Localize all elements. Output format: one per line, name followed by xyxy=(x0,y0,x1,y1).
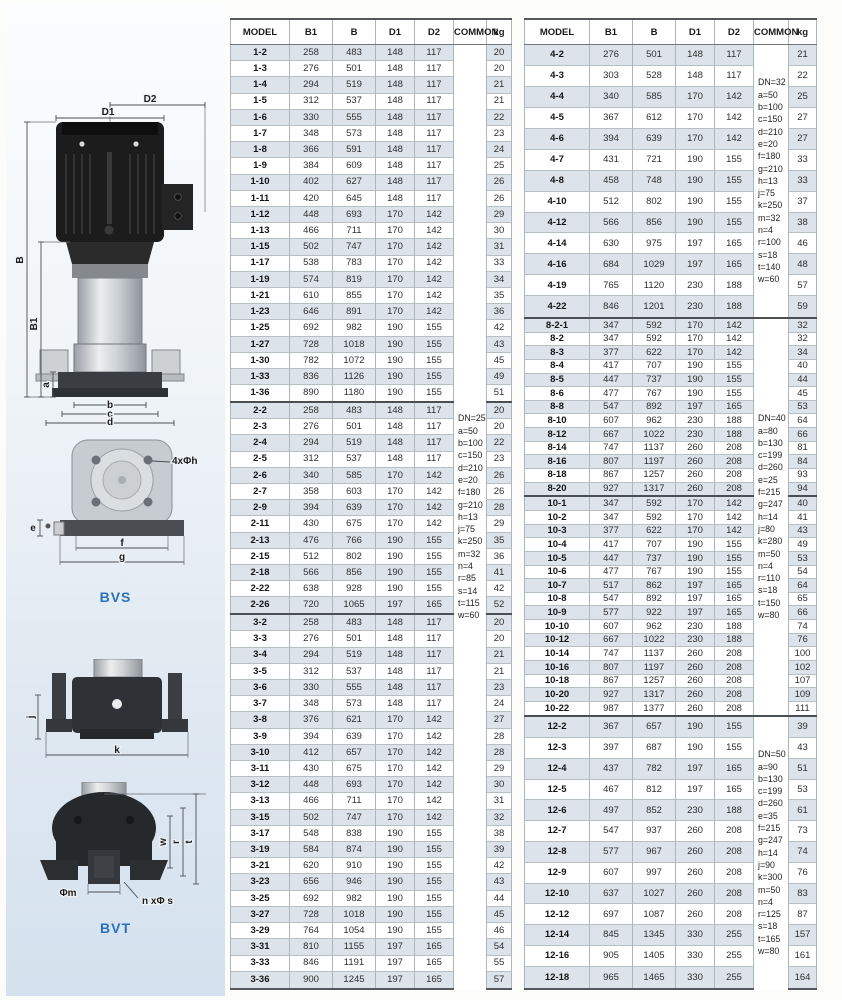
value-cell: 260 xyxy=(676,660,715,674)
value-cell: 591 xyxy=(333,142,376,158)
weight-cell: 46 xyxy=(789,233,817,254)
column-header-common: COMMON xyxy=(454,19,487,45)
value-cell: 230 xyxy=(676,633,715,647)
weight-cell: 53 xyxy=(789,400,817,414)
model-cell: 3-9 xyxy=(231,728,290,744)
value-cell: 330 xyxy=(676,946,715,967)
model-cell: 10-14 xyxy=(525,647,590,661)
model-cell: 3-7 xyxy=(231,696,290,712)
value-cell: 394 xyxy=(290,500,333,516)
weight-cell: 34 xyxy=(789,346,817,360)
weight-cell: 29 xyxy=(487,761,512,777)
diagram-panel: D2 D1 xyxy=(6,4,225,996)
value-cell: 197 xyxy=(676,254,715,275)
common-dimension-line: t=150 xyxy=(758,597,788,609)
model-cell: 3-25 xyxy=(231,890,290,906)
model-cell: 8-5 xyxy=(525,373,590,387)
value-cell: 657 xyxy=(333,744,376,760)
value-cell: 260 xyxy=(676,688,715,702)
weight-cell: 22 xyxy=(487,109,512,125)
value-cell: 737 xyxy=(633,551,676,565)
model-cell: 10-4 xyxy=(525,538,590,552)
weight-cell: 26 xyxy=(487,174,512,190)
value-cell: 997 xyxy=(633,862,676,883)
value-cell: 547 xyxy=(590,821,633,842)
value-cell: 538 xyxy=(290,255,333,271)
value-cell: 639 xyxy=(333,728,376,744)
weight-cell: 20 xyxy=(487,61,512,77)
value-cell: 230 xyxy=(676,275,715,296)
weight-cell: 74 xyxy=(789,842,817,863)
value-cell: 190 xyxy=(676,538,715,552)
value-cell: 170 xyxy=(376,467,415,483)
value-cell: 142 xyxy=(715,332,754,346)
value-cell: 260 xyxy=(676,904,715,925)
value-cell: 1137 xyxy=(633,647,676,661)
column-header-b1: B1 xyxy=(590,19,633,45)
value-cell: 148 xyxy=(376,77,415,93)
model-cell: 2-22 xyxy=(231,581,290,597)
value-cell: 566 xyxy=(290,565,333,581)
value-cell: 962 xyxy=(633,620,676,634)
value-cell: 155 xyxy=(415,369,454,385)
value-cell: 155 xyxy=(715,373,754,387)
value-cell: 155 xyxy=(415,385,454,402)
value-cell: 501 xyxy=(333,631,376,647)
common-dimension-line: e=25 xyxy=(758,474,788,486)
value-cell: 610 xyxy=(290,288,333,304)
common-dimensions-cell: DN=50a=90b=130c=199d=260e=35f=215g=247h=… xyxy=(754,716,789,989)
value-cell: 190 xyxy=(376,874,415,890)
value-cell: 142 xyxy=(415,207,454,223)
value-cell: 1126 xyxy=(333,369,376,385)
value-cell: 394 xyxy=(590,128,633,149)
common-dimension-line: w=80 xyxy=(758,945,788,957)
value-cell: 687 xyxy=(633,737,676,758)
value-cell: 519 xyxy=(333,77,376,93)
value-cell: 747 xyxy=(590,647,633,661)
weight-cell: 20 xyxy=(487,631,512,647)
weight-cell: 25 xyxy=(789,86,817,107)
value-cell: 358 xyxy=(290,484,333,500)
weight-cell: 40 xyxy=(789,359,817,373)
value-cell: 612 xyxy=(633,107,676,128)
value-cell: 190 xyxy=(676,170,715,191)
value-cell: 117 xyxy=(415,77,454,93)
common-dimension-line: m=32 xyxy=(758,212,788,224)
value-cell: 627 xyxy=(333,174,376,190)
value-cell: 197 xyxy=(676,779,715,800)
model-cell: 1-21 xyxy=(231,288,290,304)
value-cell: 117 xyxy=(415,696,454,712)
model-cell: 1-12 xyxy=(231,207,290,223)
value-cell: 748 xyxy=(633,170,676,191)
value-cell: 188 xyxy=(715,428,754,442)
dim-label-j: j xyxy=(26,715,37,719)
value-cell: 294 xyxy=(290,435,333,451)
value-cell: 900 xyxy=(290,971,333,989)
pump-base xyxy=(58,372,162,390)
value-cell: 367 xyxy=(590,107,633,128)
value-cell: 965 xyxy=(590,966,633,989)
value-cell: 208 xyxy=(715,647,754,661)
value-cell: 142 xyxy=(415,255,454,271)
model-cell: 8-10 xyxy=(525,414,590,428)
weight-cell: 73 xyxy=(789,821,817,842)
weight-cell: 21 xyxy=(487,647,512,663)
weight-cell: 21 xyxy=(487,77,512,93)
model-cell: 3-27 xyxy=(231,906,290,922)
value-cell: 165 xyxy=(415,939,454,955)
value-cell: 208 xyxy=(715,821,754,842)
model-cell: 10-16 xyxy=(525,660,590,674)
value-cell: 512 xyxy=(590,191,633,212)
value-cell: 148 xyxy=(376,631,415,647)
model-cell: 2-13 xyxy=(231,532,290,548)
value-cell: 190 xyxy=(676,359,715,373)
table-row: 4-2276501148117DN=32a=50b=100c=150d=210e… xyxy=(525,45,817,66)
model-cell: 3-5 xyxy=(231,663,290,679)
value-cell: 1029 xyxy=(633,254,676,275)
bvt-caption: BVT xyxy=(6,920,225,936)
value-cell: 1022 xyxy=(633,633,676,647)
value-cell: 148 xyxy=(376,109,415,125)
weight-cell: 30 xyxy=(487,223,512,239)
column-header-b: B xyxy=(633,19,676,45)
value-cell: 747 xyxy=(333,239,376,255)
value-cell: 165 xyxy=(715,400,754,414)
value-cell: 737 xyxy=(633,373,676,387)
table-row: 8-2-1347592170142DN=40a=80b=130c=199d=26… xyxy=(525,318,817,332)
common-dimension-line: t=165 xyxy=(758,933,788,945)
value-cell: 1120 xyxy=(633,275,676,296)
value-cell: 148 xyxy=(376,419,415,435)
value-cell: 312 xyxy=(290,93,333,109)
value-cell: 765 xyxy=(590,275,633,296)
value-cell: 693 xyxy=(333,207,376,223)
model-cell: 1-9 xyxy=(231,158,290,174)
value-cell: 197 xyxy=(376,939,415,955)
value-cell: 982 xyxy=(333,320,376,336)
model-cell: 10-3 xyxy=(525,524,590,538)
value-cell: 165 xyxy=(715,592,754,606)
value-cell: 692 xyxy=(290,320,333,336)
common-dimension-line: f=180 xyxy=(458,486,486,498)
value-cell: 1191 xyxy=(333,955,376,971)
value-cell: 148 xyxy=(376,680,415,696)
common-dimension-line: k=300 xyxy=(758,871,788,883)
value-cell: 117 xyxy=(415,61,454,77)
value-cell: 910 xyxy=(333,858,376,874)
value-cell: 142 xyxy=(415,712,454,728)
dim-label-g: g xyxy=(119,552,125,563)
common-dimension-line: h=13 xyxy=(758,175,788,187)
common-dimension-line: n=4 xyxy=(758,224,788,236)
value-cell: 148 xyxy=(376,190,415,206)
value-cell: 170 xyxy=(676,346,715,360)
common-dimension-line: m=50 xyxy=(758,548,788,560)
value-cell: 1317 xyxy=(633,688,676,702)
pump-side-view-drawing: D2 D1 xyxy=(12,92,218,426)
weight-cell: 26 xyxy=(487,484,512,500)
weight-cell: 43 xyxy=(789,737,817,758)
dim-label-d: d xyxy=(107,417,113,426)
weight-cell: 45 xyxy=(487,352,512,368)
value-cell: 330 xyxy=(676,966,715,989)
value-cell: 905 xyxy=(590,946,633,967)
weight-cell: 164 xyxy=(789,966,817,989)
value-cell: 1018 xyxy=(333,336,376,352)
weight-cell: 20 xyxy=(487,419,512,435)
value-cell: 142 xyxy=(415,288,454,304)
value-cell: 646 xyxy=(290,304,333,320)
model-cell: 4-5 xyxy=(525,107,590,128)
value-cell: 208 xyxy=(715,674,754,688)
column-header-common: COMMON xyxy=(754,19,789,45)
value-cell: 807 xyxy=(590,660,633,674)
weight-cell: 64 xyxy=(789,414,817,428)
common-dimension-line: w=60 xyxy=(758,273,788,285)
weight-cell: 27 xyxy=(789,128,817,149)
weight-cell: 44 xyxy=(789,373,817,387)
common-dimension-line: r=85 xyxy=(458,572,486,584)
value-cell: 155 xyxy=(415,581,454,597)
value-cell: 448 xyxy=(290,207,333,223)
value-cell: 142 xyxy=(715,107,754,128)
common-dimension-line: f=180 xyxy=(758,150,788,162)
weight-cell: 41 xyxy=(487,565,512,581)
model-cell: 4-12 xyxy=(525,212,590,233)
value-cell: 255 xyxy=(715,925,754,946)
value-cell: 856 xyxy=(333,565,376,581)
model-cell: 8-3 xyxy=(525,346,590,360)
value-cell: 190 xyxy=(676,373,715,387)
value-cell: 260 xyxy=(676,842,715,863)
model-cell: 3-29 xyxy=(231,923,290,939)
weight-cell: 109 xyxy=(789,688,817,702)
value-cell: 1345 xyxy=(633,925,676,946)
common-dimension-line: h=14 xyxy=(758,511,788,523)
model-cell: 8-12 xyxy=(525,428,590,442)
value-cell: 170 xyxy=(376,777,415,793)
model-cell: 3-2 xyxy=(231,614,290,631)
value-cell: 477 xyxy=(590,387,633,401)
value-cell: 117 xyxy=(715,65,754,86)
value-cell: 155 xyxy=(715,538,754,552)
weight-cell: 31 xyxy=(487,239,512,255)
value-cell: 502 xyxy=(290,239,333,255)
model-cell: 4-7 xyxy=(525,149,590,170)
value-cell: 170 xyxy=(676,128,715,149)
model-cell: 12-18 xyxy=(525,966,590,989)
model-cell: 1-4 xyxy=(231,77,290,93)
value-cell: 148 xyxy=(376,435,415,451)
value-cell: 592 xyxy=(633,496,676,510)
value-cell: 142 xyxy=(715,496,754,510)
common-dimension-line: m=50 xyxy=(758,884,788,896)
value-cell: 148 xyxy=(376,663,415,679)
value-cell: 1201 xyxy=(633,296,676,318)
model-cell: 10-7 xyxy=(525,579,590,593)
common-dimension-line: d=260 xyxy=(758,461,788,473)
value-cell: 675 xyxy=(333,516,376,532)
weight-cell: 107 xyxy=(789,674,817,688)
column-header-model: MODEL xyxy=(231,19,290,45)
value-cell: 810 xyxy=(290,939,333,955)
weight-cell: 42 xyxy=(487,858,512,874)
weight-cell: 102 xyxy=(789,660,817,674)
column-header-b: B xyxy=(333,19,376,45)
value-cell: 417 xyxy=(590,538,633,552)
common-dimension-line: m=32 xyxy=(458,548,486,560)
value-cell: 188 xyxy=(715,414,754,428)
value-cell: 697 xyxy=(590,904,633,925)
value-cell: 294 xyxy=(290,77,333,93)
value-cell: 767 xyxy=(633,387,676,401)
value-cell: 417 xyxy=(590,359,633,373)
common-dimension-line: j=90 xyxy=(758,859,788,871)
weight-cell: 46 xyxy=(487,923,512,939)
value-cell: 170 xyxy=(376,728,415,744)
model-cell: 3-33 xyxy=(231,955,290,971)
value-cell: 117 xyxy=(415,142,454,158)
value-cell: 208 xyxy=(715,701,754,715)
model-cell: 1-27 xyxy=(231,336,290,352)
weight-cell: 36 xyxy=(487,548,512,564)
value-cell: 142 xyxy=(715,524,754,538)
dim-label-d2: D2 xyxy=(144,94,157,105)
value-cell: 412 xyxy=(290,744,333,760)
model-cell: 1-10 xyxy=(231,174,290,190)
value-cell: 155 xyxy=(715,191,754,212)
value-cell: 197 xyxy=(676,233,715,254)
value-cell: 846 xyxy=(590,296,633,318)
value-cell: 348 xyxy=(290,696,333,712)
model-cell: 2-11 xyxy=(231,516,290,532)
model-cell: 1-17 xyxy=(231,255,290,271)
weight-cell: 36 xyxy=(487,304,512,320)
model-cell: 1-5 xyxy=(231,93,290,109)
value-cell: 197 xyxy=(676,400,715,414)
value-cell: 208 xyxy=(715,455,754,469)
model-cell: 8-2-1 xyxy=(525,318,590,332)
value-cell: 577 xyxy=(590,842,633,863)
value-cell: 892 xyxy=(633,400,676,414)
weight-cell: 111 xyxy=(789,701,817,715)
value-cell: 517 xyxy=(590,579,633,593)
model-cell: 12-6 xyxy=(525,800,590,821)
value-cell: 190 xyxy=(676,737,715,758)
value-cell: 148 xyxy=(376,142,415,158)
common-dimension-line: a=80 xyxy=(758,425,788,437)
common-dimension-line: e=20 xyxy=(458,474,486,486)
model-cell: 2-15 xyxy=(231,548,290,564)
value-cell: 276 xyxy=(590,45,633,66)
weight-cell: 41 xyxy=(789,511,817,525)
value-cell: 190 xyxy=(676,551,715,565)
value-cell: 117 xyxy=(415,402,454,419)
value-cell: 142 xyxy=(415,500,454,516)
value-cell: 384 xyxy=(290,158,333,174)
common-dimension-line: c=199 xyxy=(758,785,788,797)
value-cell: 638 xyxy=(290,581,333,597)
dimensions-table: MODELB1BD1D2COMMONkg4-2276501148117DN=32… xyxy=(524,18,817,990)
value-cell: 766 xyxy=(333,532,376,548)
value-cell: 170 xyxy=(676,107,715,128)
model-cell: 12-3 xyxy=(525,737,590,758)
model-cell: 4-4 xyxy=(525,86,590,107)
value-cell: 684 xyxy=(590,254,633,275)
weight-cell: 161 xyxy=(789,946,817,967)
value-cell: 1257 xyxy=(633,674,676,688)
value-cell: 142 xyxy=(415,744,454,760)
weight-cell: 33 xyxy=(487,255,512,271)
value-cell: 348 xyxy=(290,126,333,142)
value-cell: 767 xyxy=(633,565,676,579)
weight-cell: 23 xyxy=(487,680,512,696)
weight-cell: 40 xyxy=(789,496,817,510)
model-cell: 10-9 xyxy=(525,606,590,620)
common-dimension-line: b=100 xyxy=(758,101,788,113)
weight-cell: 66 xyxy=(789,606,817,620)
value-cell: 1054 xyxy=(333,923,376,939)
model-cell: 3-11 xyxy=(231,761,290,777)
common-dimension-line: a=50 xyxy=(758,89,788,101)
common-dimension-line: f=215 xyxy=(758,822,788,834)
model-cell: 8-2 xyxy=(525,332,590,346)
weight-cell: 22 xyxy=(789,65,817,86)
value-cell: 170 xyxy=(376,712,415,728)
value-cell: 711 xyxy=(333,223,376,239)
value-cell: 155 xyxy=(415,352,454,368)
common-dimension-line: e=20 xyxy=(758,138,788,150)
value-cell: 846 xyxy=(290,955,333,971)
value-cell: 667 xyxy=(590,428,633,442)
value-cell: 1155 xyxy=(333,939,376,955)
pump-side-view-diagram: D2 D1 xyxy=(12,92,218,426)
value-cell: 376 xyxy=(290,712,333,728)
weight-cell: 48 xyxy=(789,254,817,275)
value-cell: 148 xyxy=(376,126,415,142)
value-cell: 165 xyxy=(415,597,454,614)
value-cell: 190 xyxy=(376,825,415,841)
value-cell: 528 xyxy=(633,65,676,86)
weight-cell: 53 xyxy=(789,779,817,800)
weight-cell: 33 xyxy=(789,149,817,170)
value-cell: 148 xyxy=(676,45,715,66)
dim-label-4xoh: 4xΦh xyxy=(172,456,197,467)
value-cell: 142 xyxy=(415,271,454,287)
value-cell: 170 xyxy=(376,744,415,760)
dim-label-nxos: n xΦ s xyxy=(142,896,173,907)
value-cell: 928 xyxy=(333,581,376,597)
value-cell: 891 xyxy=(333,304,376,320)
value-cell: 255 xyxy=(715,946,754,967)
value-cell: 260 xyxy=(676,455,715,469)
weight-cell: 38 xyxy=(789,212,817,233)
value-cell: 255 xyxy=(715,966,754,989)
value-cell: 630 xyxy=(590,233,633,254)
value-cell: 190 xyxy=(376,532,415,548)
model-cell: 4-16 xyxy=(525,254,590,275)
weight-cell: 37 xyxy=(789,191,817,212)
value-cell: 838 xyxy=(333,825,376,841)
bvs-foot xyxy=(60,520,184,536)
value-cell: 856 xyxy=(633,212,676,233)
weight-cell: 52 xyxy=(487,597,512,614)
value-cell: 260 xyxy=(676,883,715,904)
value-cell: 208 xyxy=(715,441,754,455)
